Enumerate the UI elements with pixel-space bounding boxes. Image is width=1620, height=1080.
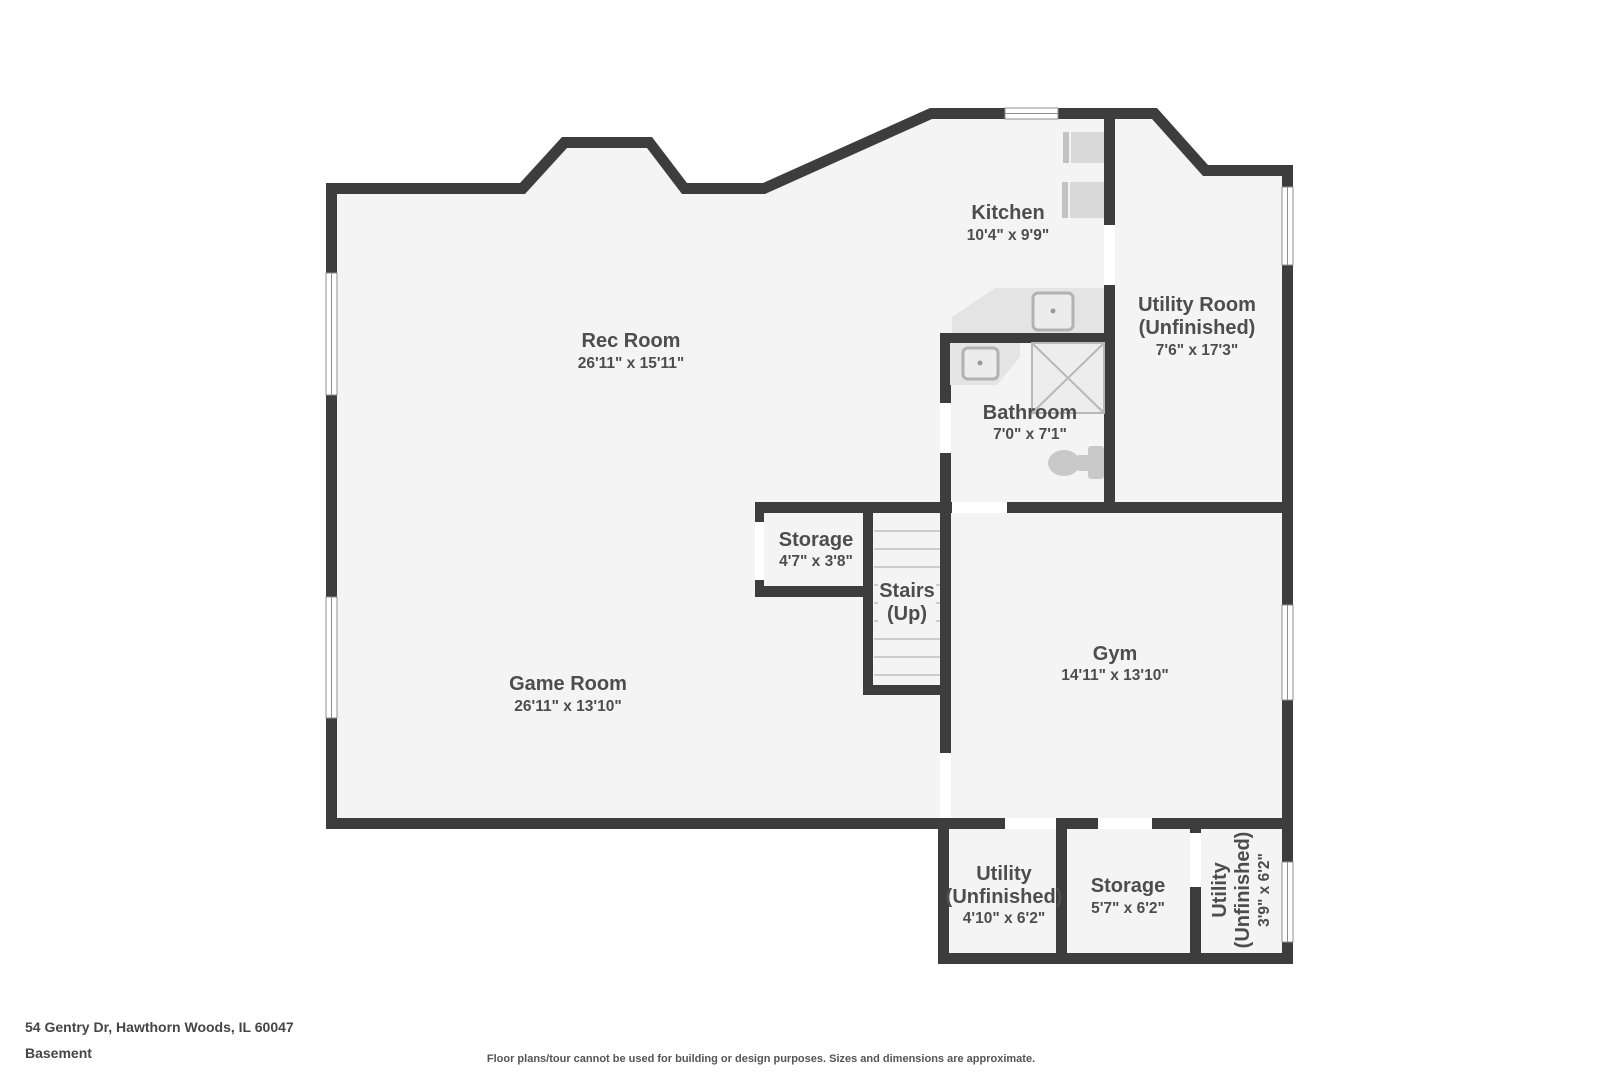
label-utility-room-qualifier: (Unfinished) — [1139, 317, 1256, 339]
label-utility-a-name: Utility — [976, 863, 1032, 885]
label-utility-b-name: Utility — [1209, 861, 1231, 917]
label-game-room-name: Game Room — [509, 673, 627, 695]
label-utility-room-dims: 7'6" x 17'3" — [1156, 342, 1238, 359]
toilet-tank — [1088, 446, 1104, 479]
floor-plan-drawing: Rec Room 26'11" x 15'11" Kitchen 10'4" x… — [0, 0, 1620, 1080]
label-storage-b-dims: 5'7" x 6'2" — [1091, 900, 1165, 917]
door-storage-b-top — [1098, 818, 1152, 829]
door-kitchen-to-utility-room — [1104, 225, 1115, 285]
toilet-bowl — [1048, 450, 1080, 476]
label-stairs-name: Stairs — [879, 580, 935, 602]
door-bathroom-bottom — [952, 502, 1007, 513]
label-storage-b-name: Storage — [1091, 875, 1165, 897]
kitchen-appliance-2 — [1070, 182, 1104, 218]
label-rec-room-name: Rec Room — [582, 330, 681, 352]
wall-storage-bottom — [755, 586, 873, 597]
kitchen-appliance-1 — [1071, 132, 1104, 163]
wall-kitchen-utility-divider-lower — [1104, 285, 1115, 513]
door-bathroom-left — [940, 403, 951, 453]
label-storage-name: Storage — [779, 529, 853, 551]
label-storage-dims: 4'7" x 3'8" — [779, 553, 853, 570]
label-utility-b-qualifier: (Unfinished) — [1232, 832, 1254, 949]
label-kitchen-dims: 10'4" x 9'9" — [967, 227, 1049, 244]
wall-bottom-divider-2 — [1190, 887, 1201, 953]
footer-disclaimer: Floor plans/tour cannot be used for buil… — [487, 1053, 1035, 1065]
kitchen-appliance-1-edge — [1063, 132, 1069, 163]
label-utility-a-dims: 4'10" x 6'2" — [963, 910, 1045, 927]
wall-storage-stairs-divider — [863, 502, 873, 695]
wall-stairs-bottom — [863, 685, 951, 695]
bathroom-sink-drain — [978, 361, 983, 366]
kitchen-sink-drain — [1051, 309, 1056, 314]
floor-plan-page: Rec Room 26'11" x 15'11" Kitchen 10'4" x… — [0, 0, 1620, 1080]
label-utility-b-dims: 3'9" x 6'2" — [1256, 853, 1273, 927]
door-storage-left — [755, 522, 764, 580]
label-gym-dims: 14'11" x 13'10" — [1061, 667, 1168, 684]
wall-gym-top — [1007, 502, 1282, 513]
label-kitchen-name: Kitchen — [971, 202, 1044, 224]
label-game-room-dims: 26'11" x 13'10" — [514, 698, 621, 715]
wall-bathroom-stairs-gym-left — [940, 453, 951, 753]
label-gym-name: Gym — [1093, 643, 1137, 665]
door-utility-a-top — [1005, 818, 1056, 829]
label-bathroom-dims: 7'0" x 7'1" — [993, 426, 1067, 443]
kitchen-appliance-2-edge — [1062, 182, 1068, 218]
footer-level: Basement — [25, 1045, 92, 1061]
door-gym-left — [940, 753, 951, 818]
label-bathroom-name: Bathroom — [983, 402, 1077, 424]
door-utility-b-left — [1190, 833, 1201, 887]
label-utility-a-qualifier: (Unfinished) — [946, 886, 1063, 908]
label-stairs-qualifier: (Up) — [887, 603, 927, 625]
wall-bottom-divider-2-stub — [1190, 829, 1201, 833]
label-utility-room-name: Utility Room — [1138, 294, 1256, 316]
label-rec-room-dims: 26'11" x 15'11" — [578, 355, 685, 372]
footer: 54 Gentry Dr, Hawthorn Woods, IL 60047 B… — [25, 1019, 1035, 1065]
wall-bathroom-left-upper — [940, 333, 951, 403]
wall-bathroom-top — [940, 333, 1115, 343]
wall-kitchen-utility-divider-upper — [1104, 108, 1115, 225]
wall-storage-stairs-top — [755, 502, 952, 513]
footer-address: 54 Gentry Dr, Hawthorn Woods, IL 60047 — [25, 1019, 294, 1035]
wall-storage-left-top-stub — [755, 513, 764, 522]
main-floor-area — [337, 119, 1282, 818]
